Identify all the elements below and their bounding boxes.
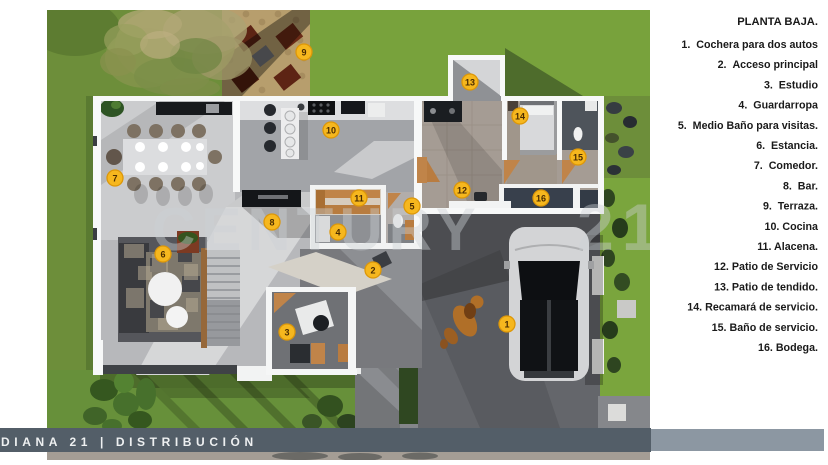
- svg-text:8: 8: [269, 218, 274, 228]
- svg-text:9. Terraza.: 9. Terraza.: [763, 201, 818, 213]
- svg-text:10: 10: [326, 126, 336, 136]
- svg-text:7: 7: [112, 174, 117, 184]
- svg-text:PLANTA BAJA.: PLANTA BAJA.: [737, 16, 818, 28]
- svg-text:5. Medio Baño para visitas.: 5. Medio Baño para visitas.: [678, 120, 818, 132]
- svg-text:DIANA 21 | DISTRIBUCIÓN: DIANA 21 | DISTRIBUCIÓN: [1, 434, 258, 449]
- svg-text:10. Cocina: 10. Cocina: [765, 221, 820, 233]
- svg-text:7. Comedor.: 7. Comedor.: [754, 160, 818, 172]
- svg-text:6: 6: [160, 250, 165, 260]
- svg-text:12. Patio de Servicio: 12. Patio de Servicio: [714, 261, 818, 273]
- svg-text:15. Baño de servicio.: 15. Baño de servicio.: [712, 322, 818, 334]
- svg-text:13. Patio de tendido.: 13. Patio de tendido.: [714, 281, 818, 293]
- svg-text:16. Bodega.: 16. Bodega.: [758, 342, 818, 354]
- svg-text:3: 3: [284, 328, 289, 338]
- svg-text:14. Recamará de servicio.: 14. Recamará de servicio.: [687, 302, 818, 314]
- svg-text:1: 1: [504, 320, 509, 330]
- svg-text:CENTURY: CENTURY: [152, 196, 482, 263]
- svg-text:2. Acceso principal: 2. Acceso principal: [718, 59, 818, 71]
- svg-text:6. Estancia.: 6. Estancia.: [756, 140, 818, 152]
- svg-text:14: 14: [515, 112, 525, 122]
- svg-text:11: 11: [354, 194, 364, 204]
- svg-text:16: 16: [536, 194, 546, 204]
- svg-text:2: 2: [370, 266, 375, 276]
- svg-text:11. Alacena.: 11. Alacena.: [757, 241, 818, 253]
- svg-text:3. Estudio: 3. Estudio: [764, 79, 819, 91]
- svg-text:8. Bar.: 8. Bar.: [783, 180, 818, 192]
- svg-text:4: 4: [335, 228, 340, 238]
- svg-text:12: 12: [457, 186, 467, 196]
- svg-text:9: 9: [301, 48, 306, 58]
- svg-text:4. Guardarropa: 4. Guardarropa: [738, 100, 819, 112]
- svg-text:5: 5: [409, 202, 414, 212]
- svg-text:13: 13: [465, 78, 475, 88]
- svg-text:15: 15: [573, 153, 583, 163]
- svg-text:1. Cochera para dos autos: 1. Cochera para dos autos: [681, 39, 818, 51]
